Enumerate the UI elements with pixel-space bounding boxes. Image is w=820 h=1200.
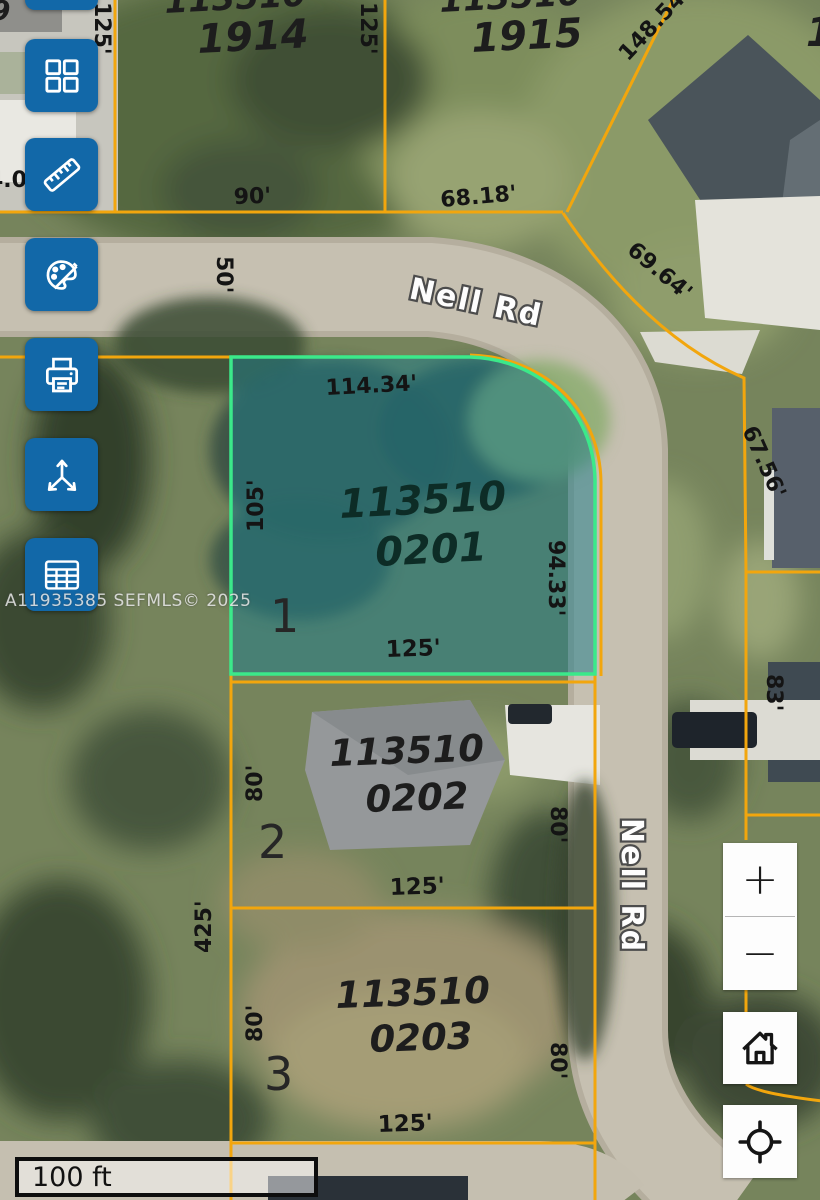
map-screenshot: 125' 125' 148.54' 90' 68.18' 50' 69.64' … (0, 0, 820, 1200)
dim-125-0201: 125' (385, 635, 441, 663)
dim-125-top-mid: 125' (355, 2, 380, 55)
parcel-0203-id-top: 113510 (335, 969, 491, 1017)
dim-90: 90' (233, 184, 271, 210)
lot-number-2: 2 (258, 815, 287, 869)
dim-114-34: 114.34' (325, 371, 418, 401)
dim-80-0203-left: 80' (243, 1005, 268, 1042)
zoom-controls: + − (723, 843, 797, 990)
parcel-0203-id-bottom: 0203 (369, 1014, 473, 1061)
share-arrows-button[interactable] (25, 438, 98, 511)
parcel-0202-id-bottom: 0202 (365, 774, 469, 821)
scale-bar-label: 100 ft (32, 1162, 112, 1193)
dim-94-33: 94.33' (543, 540, 568, 616)
partial-digit-top-right: 1 (806, 10, 820, 56)
locate-button[interactable] (723, 1105, 797, 1178)
parcel-0201-id-bottom: 0201 (374, 524, 488, 576)
dim-50: 50' (211, 256, 236, 293)
locate-crosshair-icon (737, 1119, 783, 1165)
zoom-in-button[interactable]: + (723, 843, 797, 916)
dim-80-0202-right: 80' (545, 806, 570, 843)
parcel-1914-id-bottom: 1914 (196, 11, 310, 63)
layout-grid-icon (41, 55, 83, 97)
zoom-out-button[interactable]: − (723, 917, 797, 990)
dim-425: 425' (192, 900, 217, 953)
printer-button[interactable] (25, 338, 98, 411)
layout-grid-button[interactable] (25, 39, 98, 112)
printer-icon (40, 353, 84, 397)
toolbar-button-partial[interactable] (25, 0, 98, 10)
dim-83: 83' (761, 674, 786, 711)
dim-125-0202: 125' (389, 873, 445, 901)
palette-button[interactable] (25, 238, 98, 311)
home-button[interactable] (723, 1012, 797, 1084)
table-icon (40, 553, 84, 597)
ruler-button[interactable] (25, 138, 98, 211)
partial-digit-top-left: 9 (0, 0, 10, 27)
lot-number-3: 3 (264, 1047, 293, 1101)
dim-105: 105' (244, 479, 269, 532)
palette-icon (40, 253, 84, 297)
parcel-0201-id-top: 113510 (338, 473, 507, 528)
ruler-icon (40, 153, 84, 197)
watermark: A11935385 SEFMLS© 2025 (5, 591, 251, 611)
dim-80-0203-right: 80' (545, 1042, 570, 1079)
lot-number-1: 1 (270, 589, 299, 643)
share-arrows-icon (40, 453, 84, 497)
parcel-0202-id-top: 113510 (329, 727, 485, 775)
scale-bar: 100 ft (15, 1157, 318, 1197)
dim-125-0203: 125' (377, 1110, 433, 1138)
home-icon (737, 1025, 783, 1071)
dim-80-0202-left: 80' (243, 765, 268, 802)
parcel-1915-id-bottom: 1915 (470, 10, 584, 62)
street-label-nell-rd-right: Nell Rd (614, 818, 649, 953)
